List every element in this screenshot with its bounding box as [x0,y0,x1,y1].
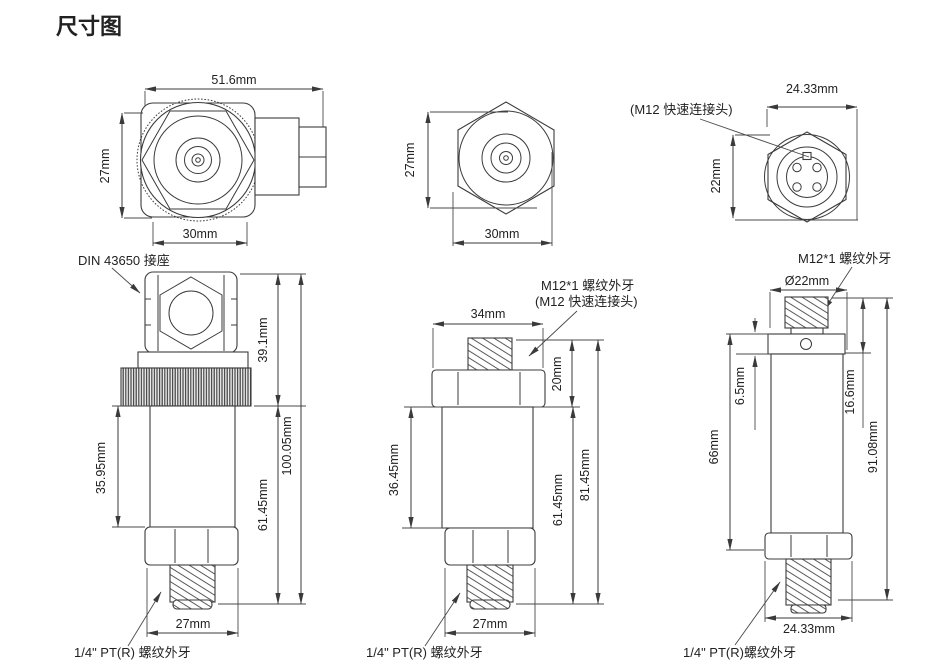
hex-outline [768,132,846,222]
thread-label: 1/4" PT(R) 螺纹外牙 [366,645,483,660]
dim-thread-dia-label: Ø22mm [785,274,829,288]
thread-label: 1/4" PT(R)螺纹外牙 [683,645,796,660]
dim-hex-width-label: 27mm [473,617,508,631]
dim-lower-section-label: 61.45mm [551,474,565,526]
dim-height-label: 27mm [98,149,112,184]
dim-width-overall-label: 51.6mm [211,73,256,87]
thread-label: 1/4" PT(R) 螺纹外牙 [74,645,191,660]
dim-height-label: 22mm [709,159,723,194]
hex-nut [445,528,535,565]
dim-body-label: 35.95mm [94,442,108,494]
connector-label: (M12 快速连接头) [630,102,733,117]
knurled-ring [121,368,251,406]
thread-leader [128,592,161,646]
connector-leader [700,119,809,157]
thread-leader [425,593,460,646]
thread-top-m12 [468,338,512,370]
dim-lower-section-label: 61.45mm [256,479,270,531]
thread-top-label: M12*1 螺纹外牙 [798,251,891,266]
thread-neck [791,328,823,334]
dim-hex-width-label: 24.33mm [783,622,835,636]
dim-body-label: 36.45mm [387,444,401,496]
thread-tip [173,600,212,609]
din-leader [112,268,140,293]
plate [138,352,248,368]
hex-nut [765,533,852,559]
connector-label: (M12 快速连接头) [535,294,638,309]
connector-leader [529,311,577,356]
din-connector-label: DIN 43650 接座 [78,253,170,268]
top-view-din43650: 51.6mm 27mm 30mm [98,73,326,246]
thread-top-m12 [785,297,828,328]
hex-nut [145,527,238,565]
thread-stud [467,565,513,602]
dim-width-overall-label: 24.33mm [786,82,838,96]
dim-top-section-label: 39.1mm [256,317,270,362]
body-cylinder [771,354,843,533]
dim-total-label: 100.05mm [280,416,294,475]
thread-tip [470,600,510,609]
thread-stud [170,565,215,602]
body-cylinder [442,407,533,528]
dim-hex-width-label: 27mm [176,617,211,631]
dim-total-label: 91.08mm [866,421,880,473]
connector-body-side [255,118,299,195]
dimension-drawing-page: 尺寸图 51.6mm 27mm 30mm [0,0,930,667]
thread-leader [735,582,780,645]
top-view-hex: 27mm 30mm [403,102,554,246]
hex-nut-outline [458,102,554,214]
dim-top-section-label: 20mm [550,357,564,392]
thread-stud [786,559,831,605]
dim-hex-top-width-label: 34mm [471,307,506,321]
dim-height-label: 27mm [403,143,417,178]
side-view-m12-compact: M12*1 螺纹外牙 (M12 快速连接头) 34mm 20mm 36.45mm… [366,278,638,660]
body-cylinder [150,406,235,527]
page-title: 尺寸图 [56,14,122,39]
thread-top-label: M12*1 螺纹外牙 [541,278,634,293]
knurled-ring [141,103,256,218]
side-view-m12-long: M12*1 螺纹外牙 Ø22mm 6.5mm 16.6mm 66mm [683,251,893,660]
dim-width-hex-label: 30mm [183,227,218,241]
dim-total-label: 81.45mm [578,449,592,501]
dim-body-label: 66mm [707,430,721,465]
drawing-canvas: 尺寸图 51.6mm 27mm 30mm [0,0,930,667]
hex-top [432,370,545,407]
collar [768,334,845,354]
thread-tip [791,605,826,613]
top-view-m12: (M12 快速连接头) 24.33mm 22mm [630,82,858,222]
side-view-din43650: DIN 43650 接座 39.1mm 61.45mm 100.05mm 35 [74,253,306,660]
din-connector-box [145,272,237,353]
dim-collar-label: 6.5mm [733,367,747,405]
dim-top-section-label: 16.6mm [843,369,857,414]
dim-width-hex-label: 30mm [485,227,520,241]
